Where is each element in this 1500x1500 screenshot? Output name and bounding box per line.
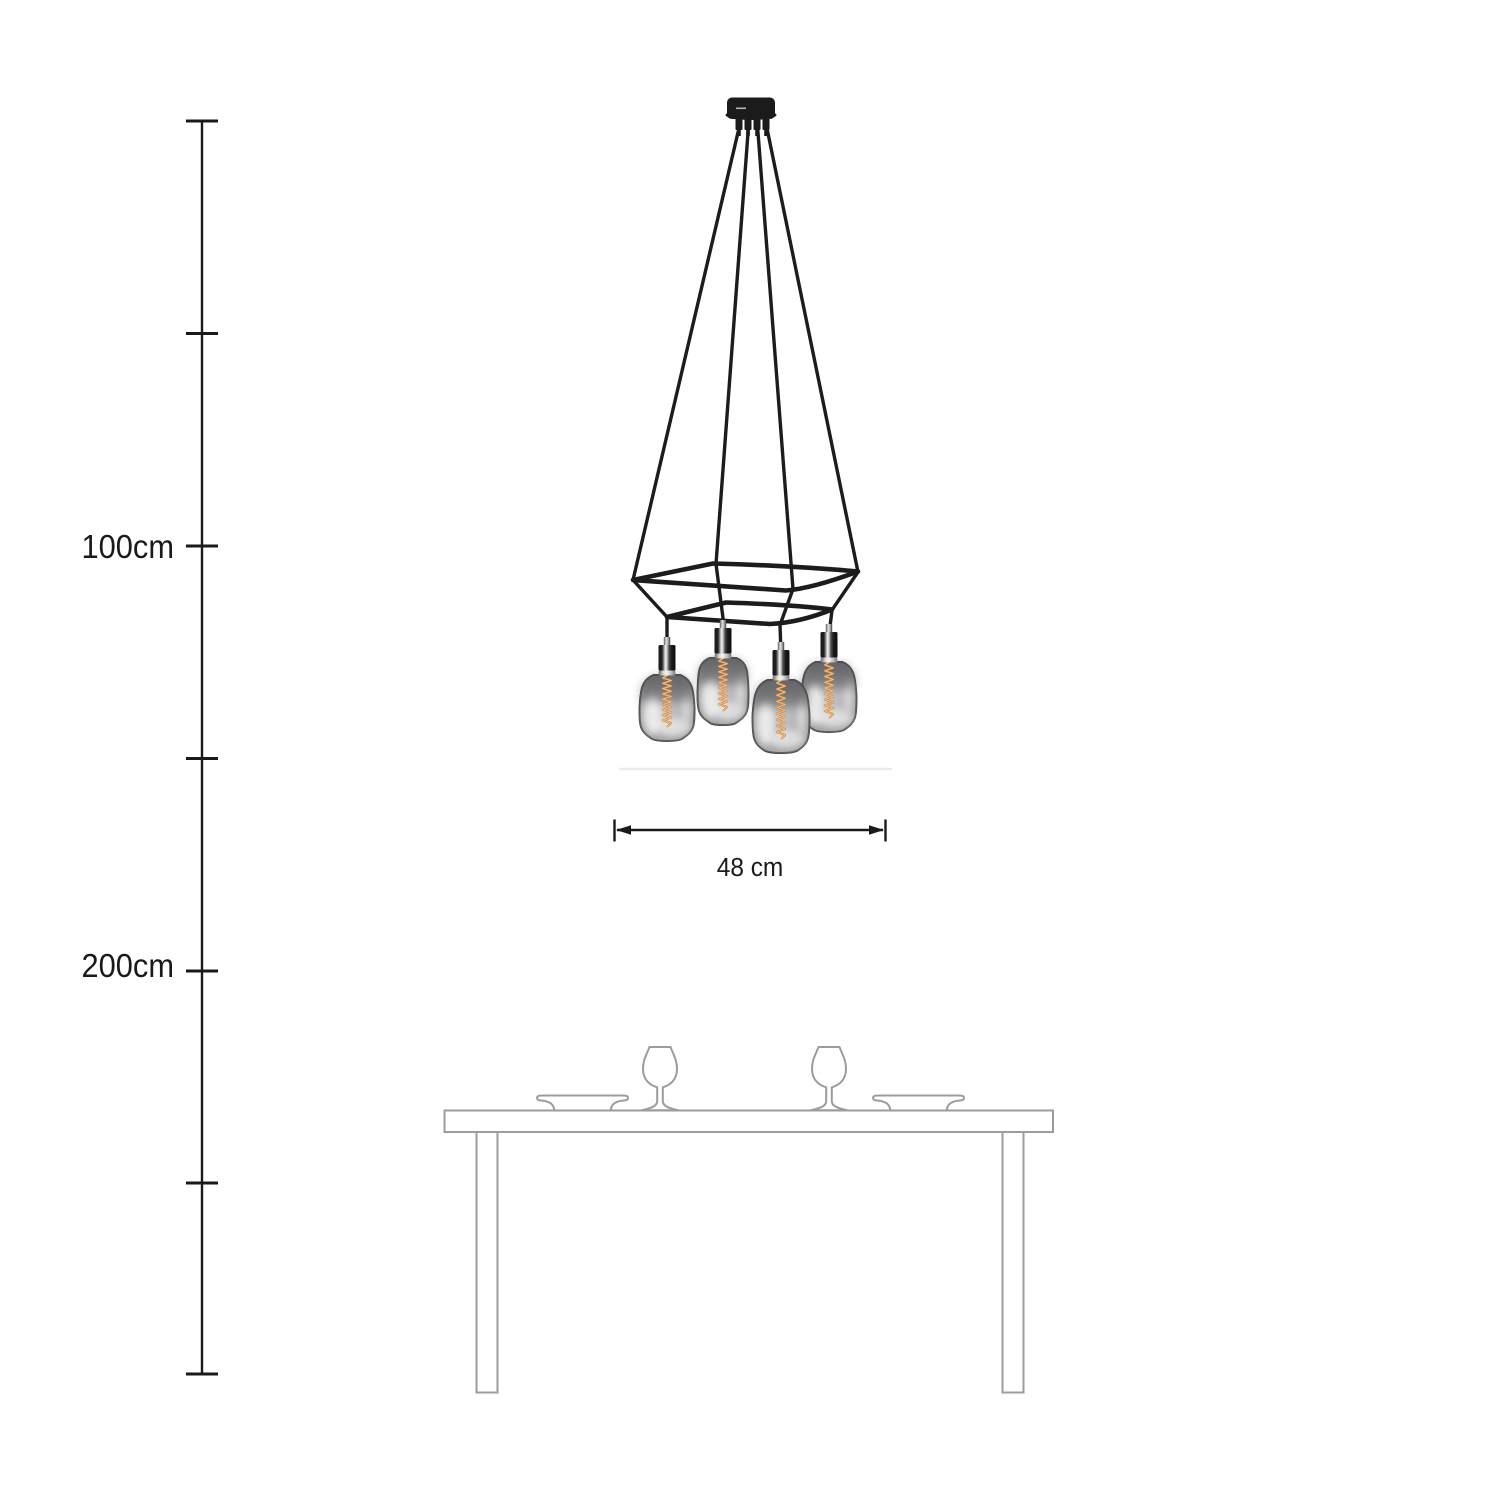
svg-text:48 cm: 48 cm	[717, 853, 784, 882]
svg-text:200cm: 200cm	[82, 947, 174, 984]
svg-text:100cm: 100cm	[82, 528, 174, 565]
